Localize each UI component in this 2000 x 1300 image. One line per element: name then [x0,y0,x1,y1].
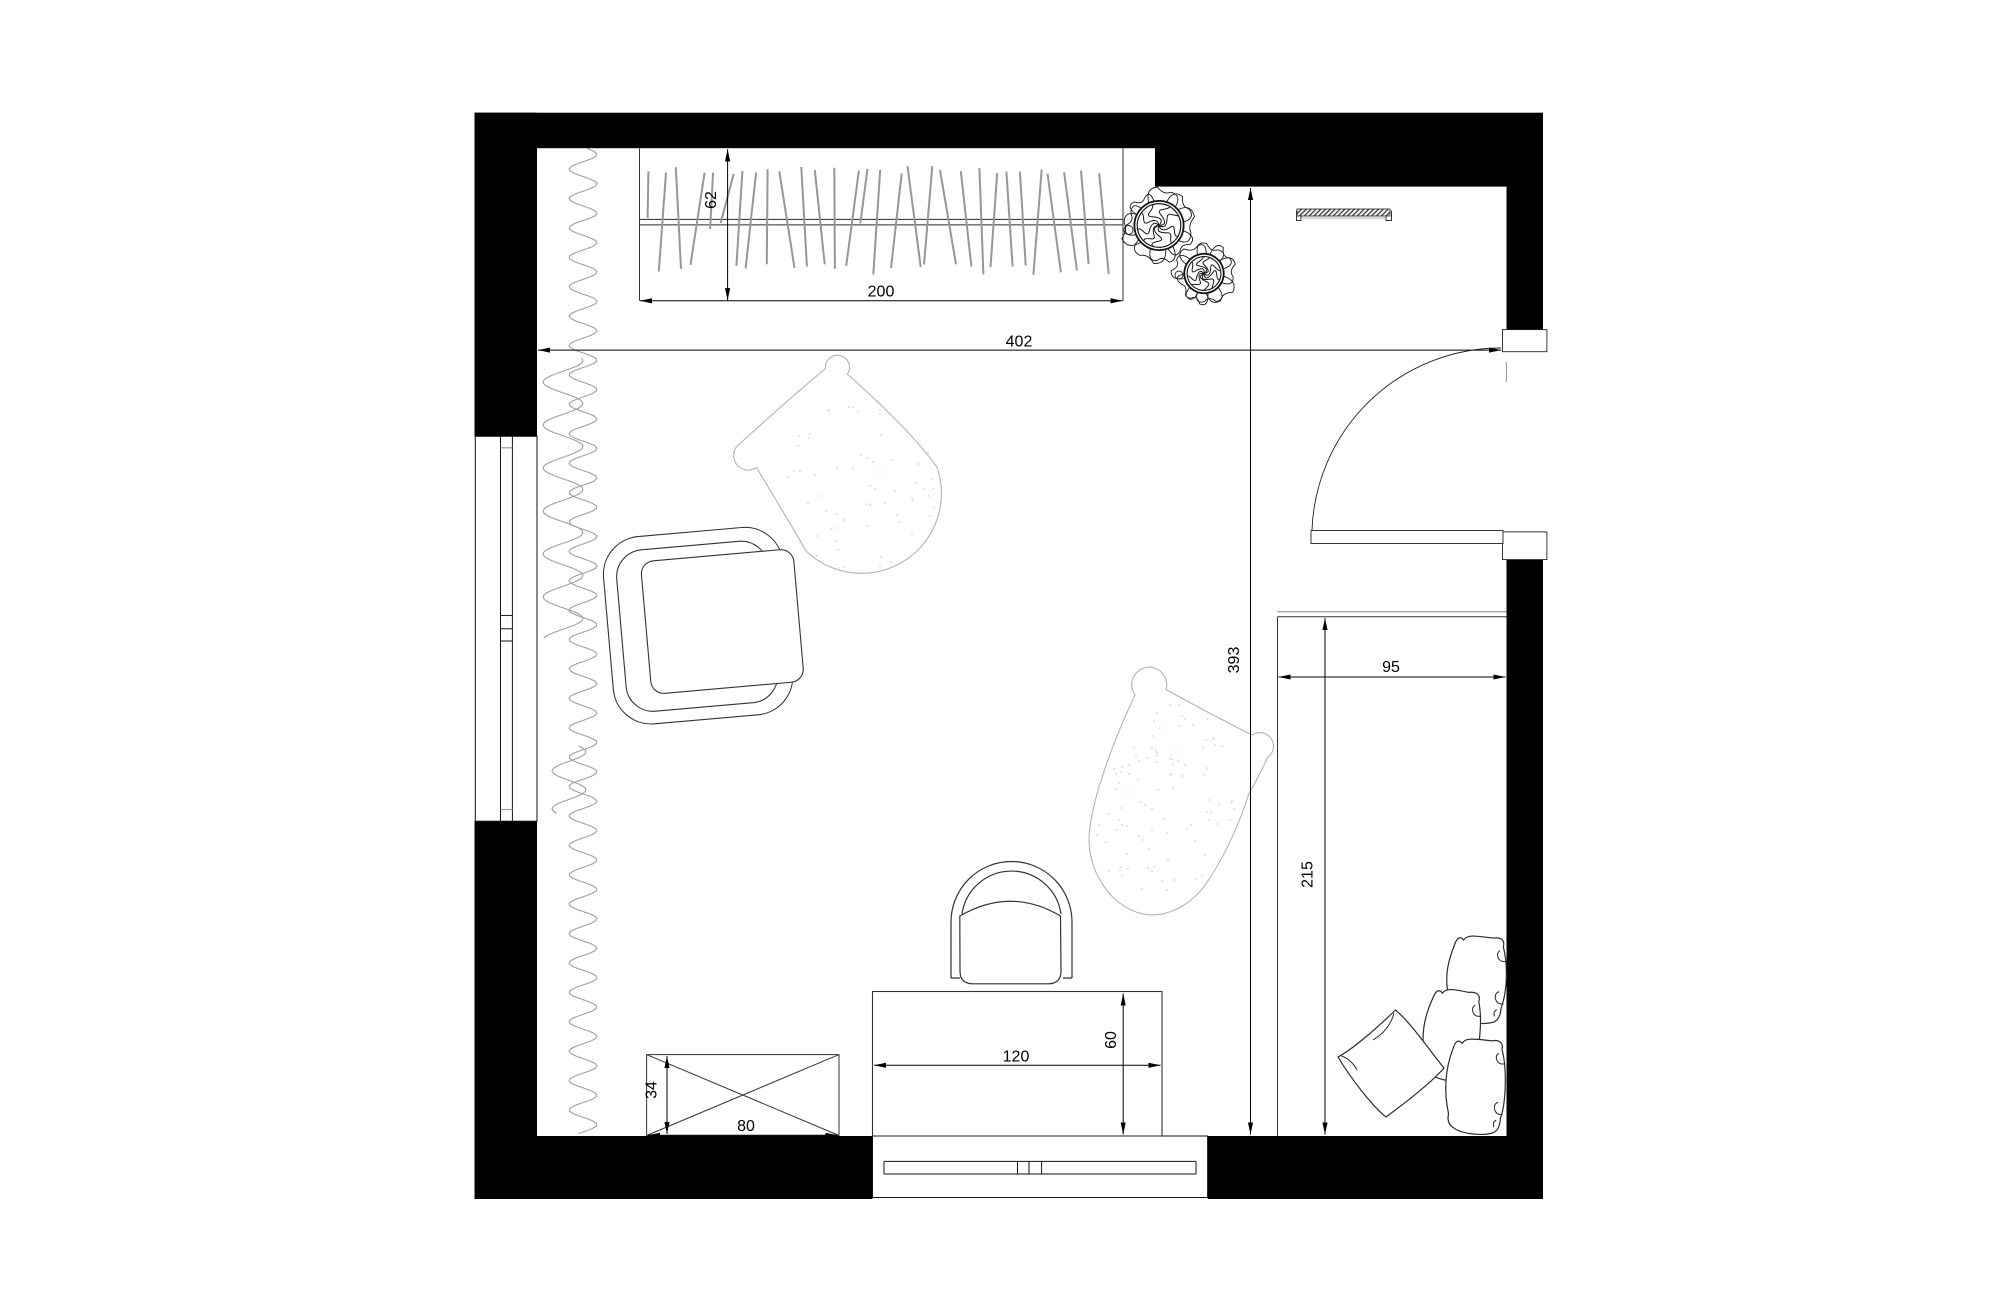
svg-text:80: 80 [737,1118,755,1135]
svg-text:62: 62 [703,191,720,209]
svg-text:120: 120 [1003,1049,1030,1066]
svg-text:215: 215 [1300,861,1317,888]
svg-text:34: 34 [644,1081,661,1099]
svg-text:402: 402 [1006,334,1033,351]
svg-text:95: 95 [1382,659,1400,676]
svg-text:200: 200 [868,284,895,301]
svg-text:60: 60 [1103,1031,1120,1049]
svg-text:393: 393 [1226,647,1243,674]
